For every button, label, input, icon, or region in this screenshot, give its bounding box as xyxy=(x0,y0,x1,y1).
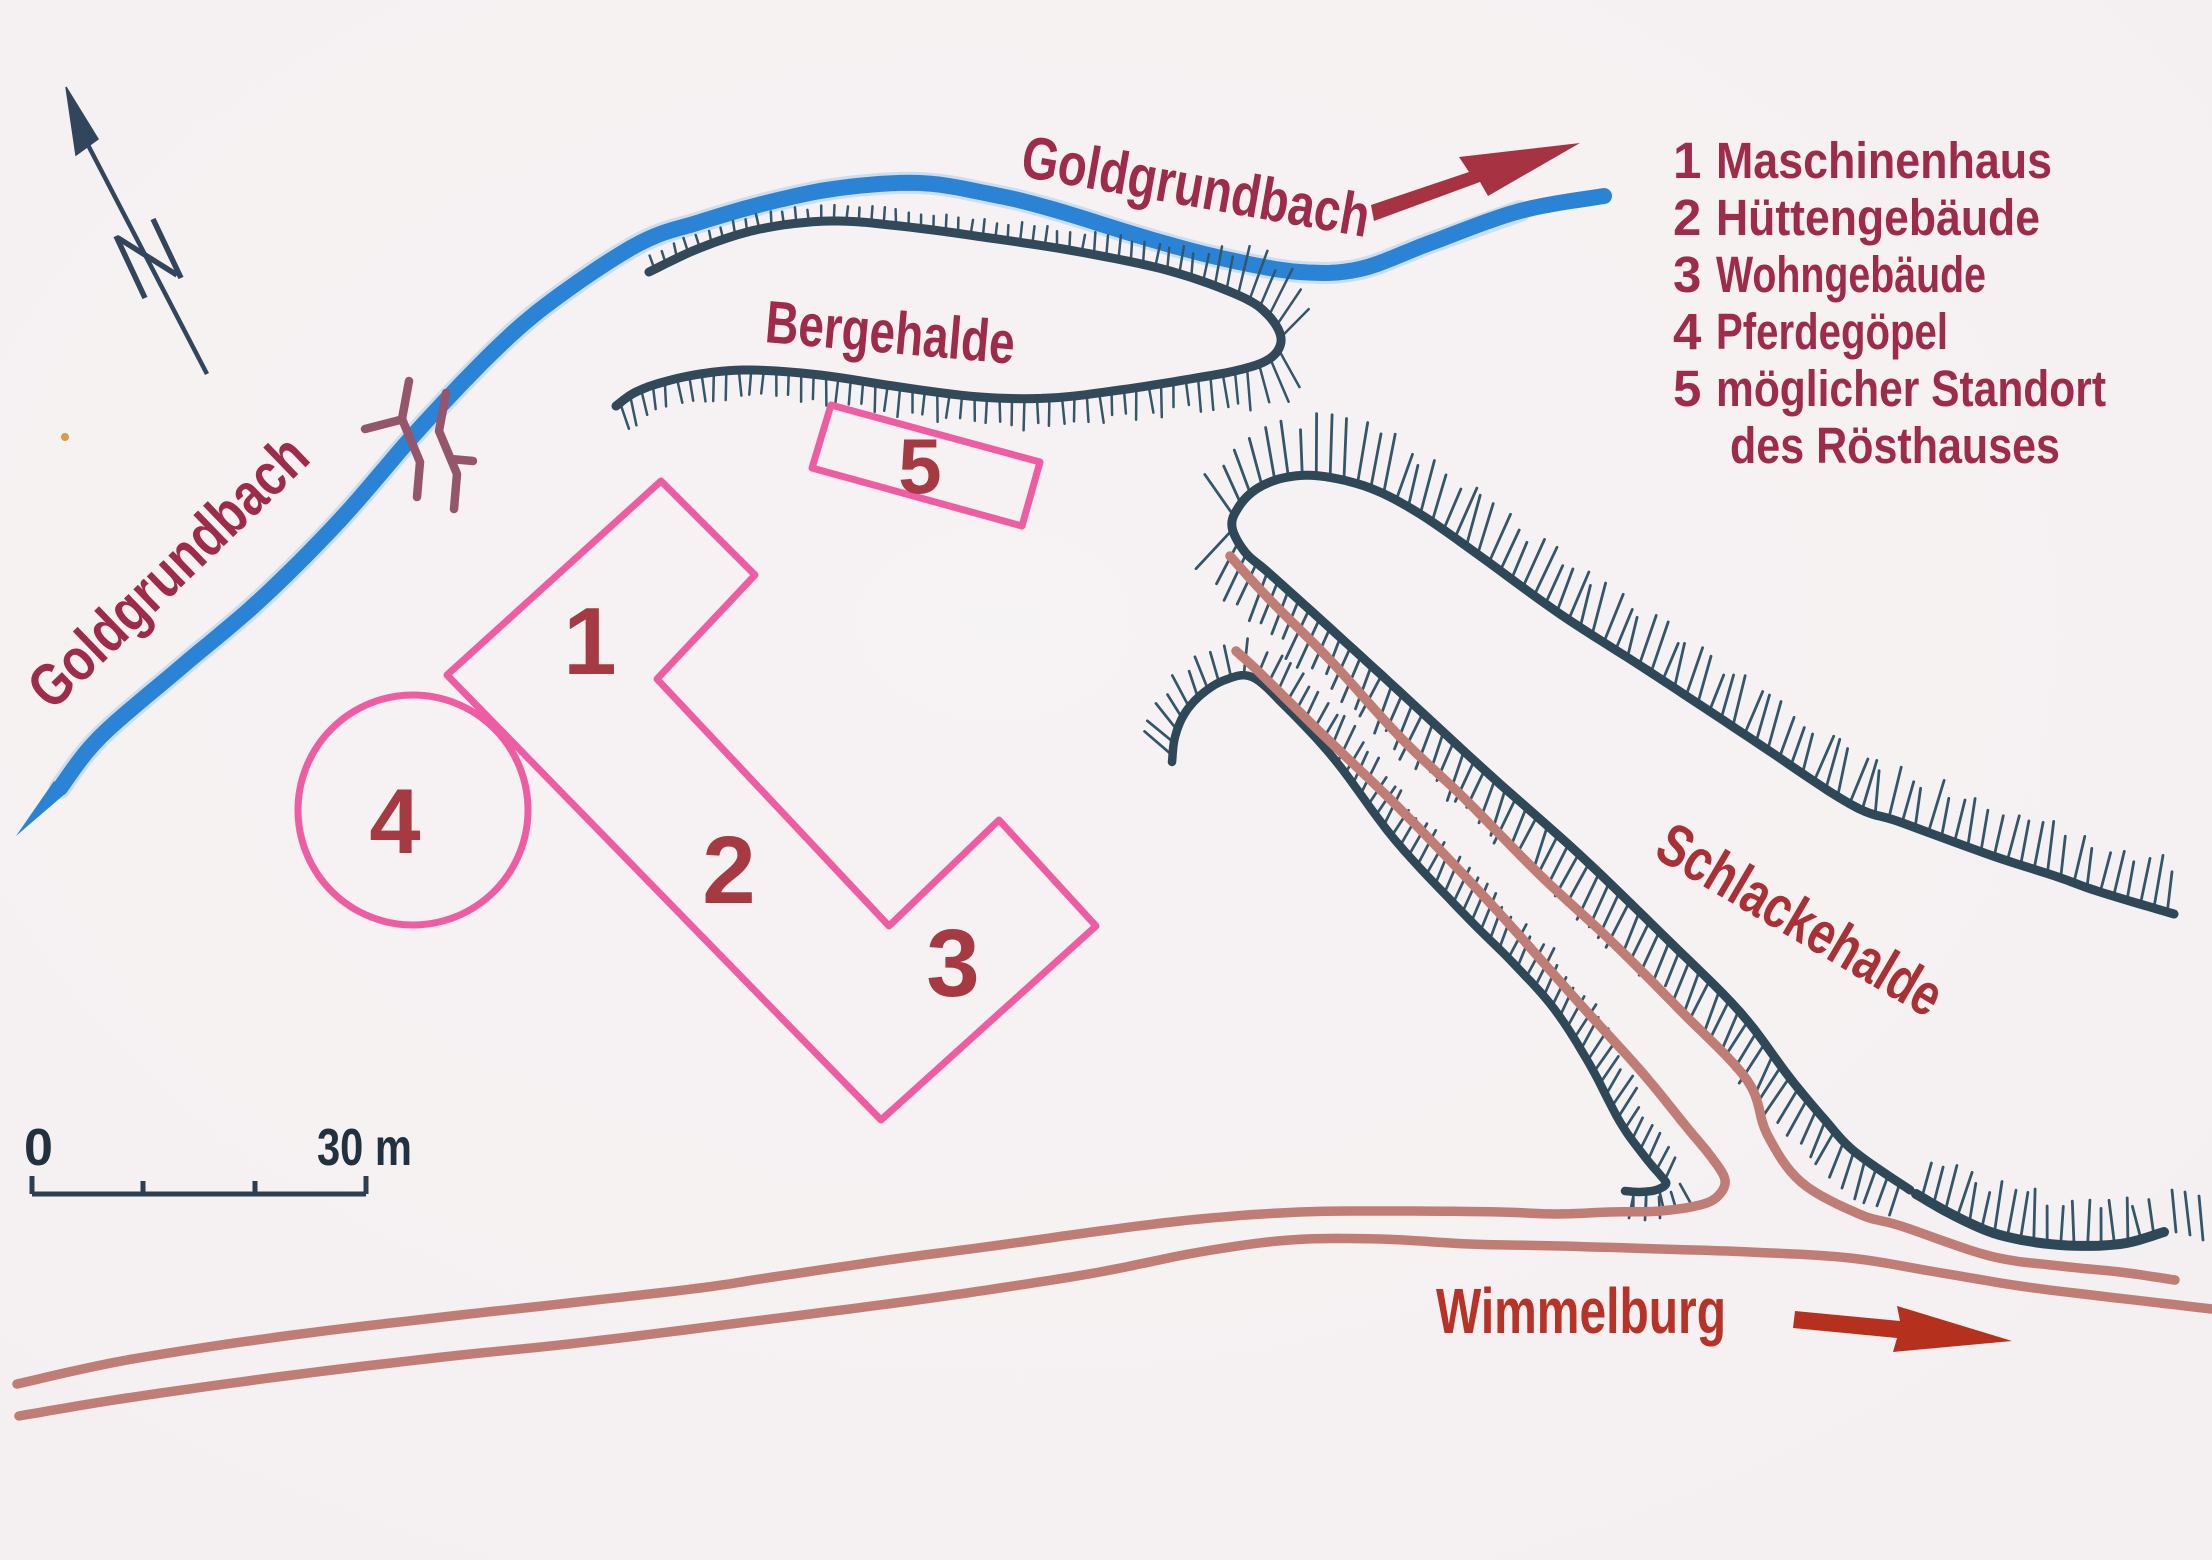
svg-text:0: 0 xyxy=(24,1119,53,1177)
svg-text:3: 3 xyxy=(1673,246,1701,303)
svg-text:des Rösthauses: des Rösthauses xyxy=(1730,417,2060,474)
svg-text:30 m: 30 m xyxy=(317,1119,412,1177)
svg-text:möglicher Standort: möglicher Standort xyxy=(1716,360,2106,417)
svg-text:Wimmelburg: Wimmelburg xyxy=(1436,1275,1726,1347)
svg-text:5: 5 xyxy=(1673,360,1701,417)
svg-text:1: 1 xyxy=(563,588,616,695)
svg-text:3: 3 xyxy=(926,910,979,1017)
svg-text:2: 2 xyxy=(702,817,755,924)
svg-text:4: 4 xyxy=(1673,303,1702,360)
svg-text:1: 1 xyxy=(1673,132,1701,189)
svg-text:4: 4 xyxy=(369,771,420,873)
svg-text:2: 2 xyxy=(1673,189,1701,246)
svg-text:5: 5 xyxy=(898,422,941,510)
svg-text:Hüttengebäude: Hüttengebäude xyxy=(1716,189,2040,246)
svg-text:Pferdegöpel: Pferdegöpel xyxy=(1716,303,1948,360)
svg-text:Maschinenhaus: Maschinenhaus xyxy=(1716,132,2052,189)
svg-text:Wohngebäude: Wohngebäude xyxy=(1716,246,1986,303)
